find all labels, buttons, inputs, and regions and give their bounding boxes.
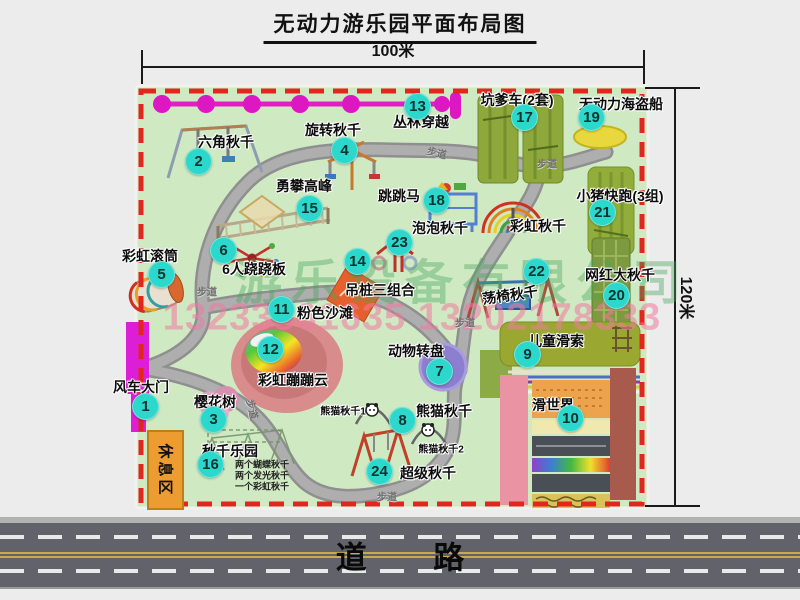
big-swing-block-icon [592, 238, 630, 326]
dimension-line-top [142, 50, 644, 84]
road-asphalt: 道 路 [0, 523, 800, 589]
slide-world-icon [500, 368, 636, 508]
animal-turntable-icon [420, 344, 466, 390]
rest-area-box: 休息区 [147, 430, 184, 510]
pirate-ship-icon [574, 126, 626, 148]
road: 道 路 [0, 517, 800, 590]
pink-beach-icon [231, 317, 343, 413]
rainbow-bounce-cloud-icon [246, 330, 302, 374]
park-map-drawing [0, 0, 800, 600]
road-label: 道 路 [336, 533, 465, 578]
dimension-line-right [645, 88, 700, 506]
windmill-gate-icon [126, 322, 149, 432]
park-layout-figure: 无动力游乐园平面布局图 100米 120米 [0, 0, 800, 600]
rest-area-label: 休息区 [155, 443, 176, 497]
